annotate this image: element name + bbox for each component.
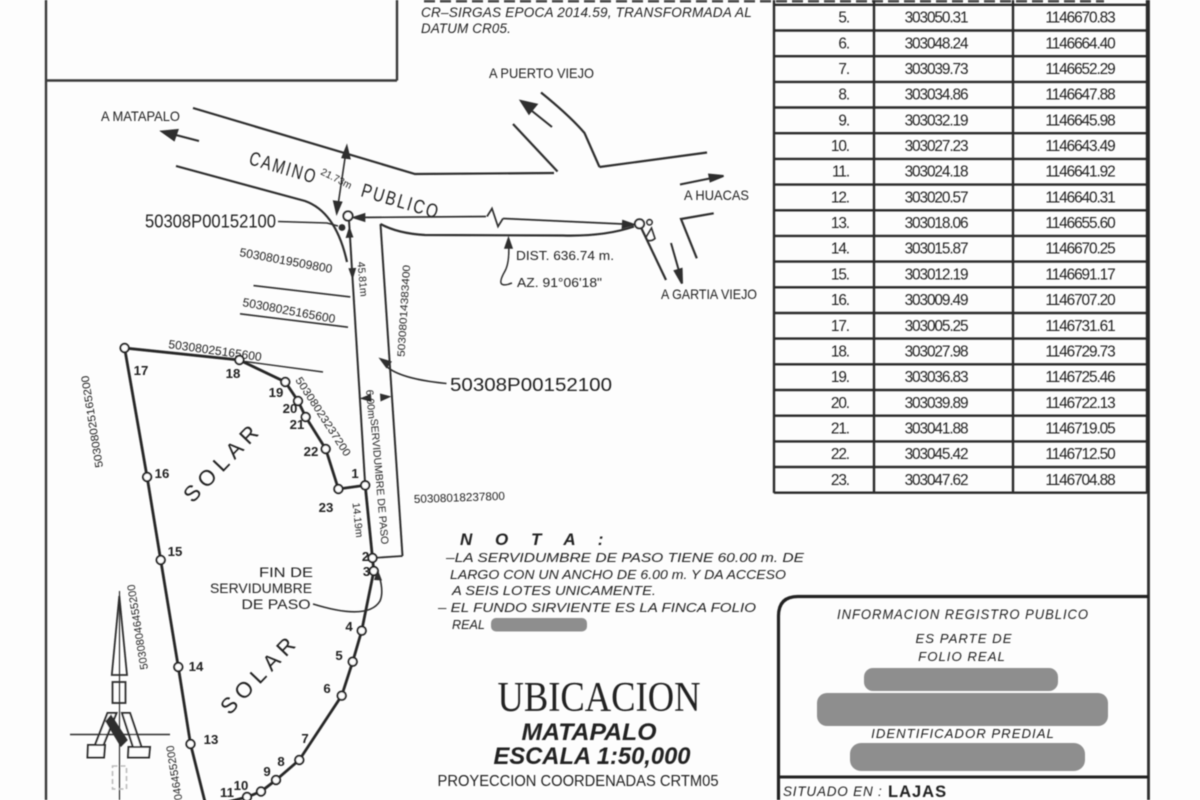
svg-text:A HUACAS: A HUACAS (684, 187, 749, 203)
svg-text:14.: 14. (831, 241, 849, 258)
svg-text:1146640.31: 1146640.31 (1045, 189, 1115, 206)
svg-text:21: 21 (290, 417, 305, 432)
svg-text:A SEIS LOTES UNICAMENTE.: A SEIS LOTES UNICAMENTE. (451, 584, 656, 598)
svg-text:2: 2 (362, 549, 369, 564)
svg-text:303034.86: 303034.86 (905, 87, 968, 104)
svg-text:303036.83: 303036.83 (905, 369, 968, 386)
svg-text:A PUERTO VIEJO: A PUERTO VIEJO (489, 65, 594, 81)
svg-text:22: 22 (304, 444, 319, 459)
svg-text:1146647.88: 1146647.88 (1045, 87, 1115, 104)
svg-text:AZ. 91°06'18": AZ. 91°06'18" (517, 275, 602, 290)
svg-text:MATAPALO: MATAPALO (522, 719, 657, 746)
svg-text:1146704.88: 1146704.88 (1045, 472, 1115, 489)
svg-text:11: 11 (220, 785, 234, 800)
svg-text:1146707.20: 1146707.20 (1045, 292, 1115, 309)
svg-text:303045.42: 303045.42 (905, 446, 968, 463)
svg-text:22.: 22. (831, 446, 849, 463)
svg-text:303024.18: 303024.18 (905, 164, 968, 181)
svg-text:14.19m: 14.19m (350, 502, 366, 538)
svg-text:SITUADO EN :: SITUADO EN : (783, 784, 883, 799)
svg-text:14: 14 (189, 659, 204, 674)
svg-text:50308019509800: 50308019509800 (238, 245, 333, 276)
svg-text:9.: 9. (838, 112, 849, 129)
svg-text:303005.25: 303005.25 (905, 318, 968, 335)
svg-text:303048.24: 303048.24 (905, 35, 969, 52)
svg-text:1146645.98: 1146645.98 (1045, 112, 1115, 129)
svg-text:19: 19 (269, 385, 284, 400)
svg-text:SOLAR: SOLAR (178, 416, 267, 507)
svg-text:N O T A :: N O T A : (460, 530, 612, 549)
svg-text:UBICACION: UBICACION (498, 675, 701, 721)
svg-text:REAL: REAL (452, 618, 485, 632)
svg-text:16.: 16. (831, 292, 849, 309)
svg-text:1146652.29: 1146652.29 (1045, 61, 1115, 78)
svg-text:LAJAS: LAJAS (888, 783, 947, 800)
svg-text:15: 15 (168, 544, 183, 559)
svg-text:6.: 6. (838, 35, 849, 52)
svg-text:45.81m: 45.81m (355, 261, 370, 297)
svg-text:50308046455200: 50308046455200 (165, 745, 190, 800)
svg-text:303050.31: 303050.31 (905, 10, 968, 27)
svg-text:LARGO CON UN ANCHO DE 6.0: LARGO CON UN ANCHO DE 6.00 m. Y DA ACCES… (450, 568, 786, 582)
svg-text:50308018237800: 50308018237800 (414, 491, 505, 506)
svg-text:303032.19: 303032.19 (905, 112, 968, 129)
svg-text:303015.87: 303015.87 (905, 241, 968, 258)
svg-text:8: 8 (277, 754, 284, 769)
svg-text:10.: 10. (831, 138, 849, 155)
svg-text:50308P00152100: 50308P00152100 (145, 212, 276, 232)
svg-text:15.: 15. (831, 266, 849, 283)
svg-text:FIN DE: FIN DE (259, 564, 313, 580)
svg-text:SERVIDUMBRE DE PASO: SERVIDUMBRE DE PASO (368, 418, 391, 545)
svg-text:303039.89: 303039.89 (905, 395, 968, 412)
svg-text:6.00m: 6.00m (363, 389, 378, 419)
svg-text:PROYECCION COORDENADAS CRTM0: PROYECCION COORDENADAS CRTM05 (438, 773, 719, 790)
svg-text:– EL FUNDO SIRVIENTE ES L: – EL FUNDO SIRVIENTE ES LA FINCA FOLIO (437, 601, 756, 615)
svg-text:A MATAPALO: A MATAPALO (101, 108, 180, 124)
svg-text:1146725.46: 1146725.46 (1045, 369, 1115, 386)
svg-text:1146670.25: 1146670.25 (1045, 241, 1115, 258)
svg-text:A GARTIA VIEJO: A GARTIA VIEJO (661, 286, 757, 302)
svg-text:DIST. 636.74 m.: DIST. 636.74 m. (516, 248, 614, 263)
svg-text:50308025165600: 50308025165600 (168, 337, 263, 364)
svg-text:SOLAR: SOLAR (215, 628, 304, 719)
svg-text:50308025165200: 50308025165200 (80, 375, 106, 469)
svg-text:16: 16 (155, 466, 170, 481)
svg-text:303018.06: 303018.06 (905, 215, 968, 232)
svg-text:303009.49: 303009.49 (905, 292, 968, 309)
svg-text:303047.62: 303047.62 (905, 472, 968, 489)
svg-text:FOLIO REAL: FOLIO REAL (918, 649, 1006, 664)
svg-text:3: 3 (363, 564, 370, 579)
svg-text:19.: 19. (831, 369, 849, 386)
svg-text:1146719.05: 1146719.05 (1045, 421, 1115, 438)
svg-text:CAMINO: CAMINO (247, 148, 320, 189)
svg-text:1146655.60: 1146655.60 (1045, 215, 1115, 232)
svg-text:17.: 17. (831, 318, 849, 335)
svg-text:13.: 13. (831, 215, 849, 232)
svg-text:1146712.50: 1146712.50 (1045, 446, 1115, 463)
svg-text:ESCALA 1:50,000: ESCALA 1:50,000 (494, 743, 692, 770)
svg-text:5: 5 (335, 648, 342, 663)
svg-text:13: 13 (204, 732, 219, 747)
svg-text:50308P00152100: 50308P00152100 (450, 374, 612, 395)
svg-text:IDENTIFICADOR PREDIAL: IDENTIFICADOR PREDIAL (871, 726, 1055, 741)
svg-text:23.: 23. (831, 472, 849, 489)
svg-text:303012.19: 303012.19 (905, 266, 968, 283)
svg-text:23: 23 (319, 500, 334, 515)
svg-text:303039.73: 303039.73 (905, 61, 968, 78)
svg-text:18: 18 (226, 366, 241, 381)
svg-text:303027.23: 303027.23 (905, 138, 968, 155)
svg-text:1146641.92: 1146641.92 (1045, 164, 1115, 181)
svg-text:21.: 21. (831, 421, 849, 438)
svg-text:303041.88: 303041.88 (905, 421, 968, 438)
svg-text:18.: 18. (831, 343, 849, 360)
svg-text:50308046455200: 50308046455200 (126, 584, 151, 671)
svg-text:7.: 7. (838, 61, 849, 78)
svg-text:DE PASO: DE PASO (242, 596, 311, 612)
svg-text:17: 17 (134, 363, 149, 378)
svg-text:6: 6 (323, 681, 330, 696)
svg-text:4: 4 (345, 619, 353, 634)
svg-text:21.73m: 21.73m (319, 167, 354, 192)
svg-text:1: 1 (351, 466, 358, 481)
svg-text:11.: 11. (832, 164, 849, 181)
svg-text:7: 7 (301, 731, 308, 746)
svg-text:1146664.40: 1146664.40 (1045, 35, 1115, 52)
svg-text:20: 20 (283, 401, 298, 416)
svg-text:INFORMACION REGISTRO PUBLICO: INFORMACION REGISTRO PUBLICO (837, 607, 1089, 622)
svg-text:CR–SIRGAS EPOCA 2014.59, TRANS: CR–SIRGAS EPOCA 2014.59, TRANSFORMADA AL (421, 5, 752, 21)
svg-text:303020.57: 303020.57 (905, 189, 968, 206)
svg-text:1146729.73: 1146729.73 (1045, 343, 1115, 360)
svg-text:12.: 12. (831, 189, 849, 206)
svg-text:20.: 20. (831, 395, 849, 412)
svg-text:8.: 8. (838, 87, 849, 104)
svg-text:1146731.61: 1146731.61 (1045, 318, 1115, 335)
svg-text:ES PARTE DE: ES PARTE DE (916, 631, 1013, 646)
svg-text:–LA SERVIDUMBRE DE PASO TI: –LA SERVIDUMBRE DE PASO TIENE 60.00 m. D… (445, 551, 805, 565)
svg-text:50308025165600: 50308025165600 (241, 295, 336, 326)
svg-text:1146670.83: 1146670.83 (1045, 10, 1115, 27)
svg-text:10: 10 (234, 778, 249, 793)
svg-text:5.: 5. (838, 10, 849, 27)
svg-text:SERVIDUMBRE: SERVIDUMBRE (210, 580, 312, 596)
svg-text:1146722.13: 1146722.13 (1045, 395, 1115, 412)
svg-text:50308014383400: 50308014383400 (396, 264, 414, 357)
svg-text:DATUM CR05.: DATUM CR05. (421, 21, 511, 37)
svg-text:1146643.49: 1146643.49 (1045, 138, 1115, 155)
svg-text:1146691.17: 1146691.17 (1045, 266, 1115, 283)
svg-text:9: 9 (263, 764, 270, 779)
svg-text:303027.98: 303027.98 (905, 343, 968, 360)
